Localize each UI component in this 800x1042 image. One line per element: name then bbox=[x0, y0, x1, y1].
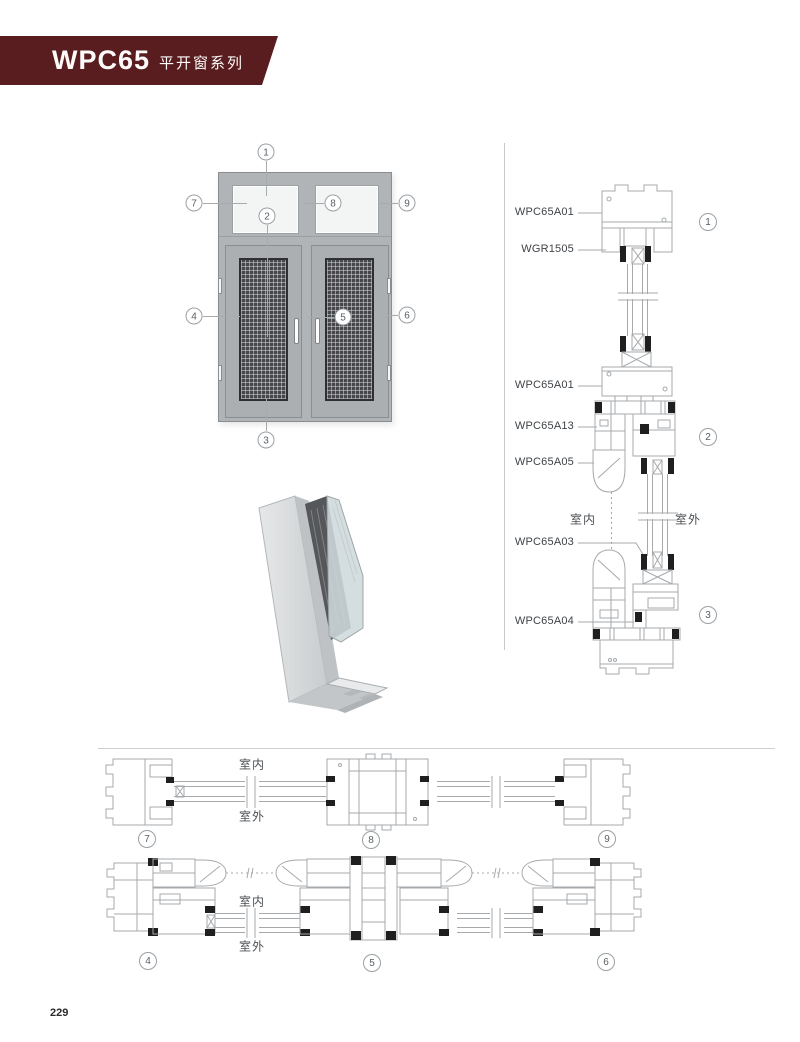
elevation-callout-3: 3 bbox=[258, 432, 275, 449]
profile-label-4: WPC65A13 bbox=[504, 420, 574, 433]
header-banner: WPC65 平开窗系列 bbox=[0, 36, 278, 85]
series-code: WPC65 bbox=[52, 47, 150, 74]
leader-line bbox=[388, 315, 398, 316]
profile-label-1: WPC65A01 bbox=[504, 206, 574, 219]
indoor-label: 室内 bbox=[239, 893, 265, 910]
hinge-right-top bbox=[387, 278, 391, 294]
section-circle-7: 7 bbox=[138, 830, 156, 848]
leader-line bbox=[266, 399, 267, 431]
section-circle-5: 5 bbox=[363, 954, 381, 972]
profile-label-6: WPC65A03 bbox=[504, 536, 574, 549]
leader-line bbox=[303, 203, 324, 204]
elevation-callout-9: 9 bbox=[399, 195, 416, 212]
transom-seam bbox=[219, 236, 391, 237]
leader-line bbox=[266, 161, 267, 196]
window-elevation bbox=[218, 172, 392, 422]
handle-left-sash bbox=[294, 318, 299, 344]
indoor-label: 室内 bbox=[570, 511, 596, 528]
outdoor-label: 室外 bbox=[239, 938, 265, 955]
profile-label-7: WPC65A04 bbox=[504, 615, 574, 628]
panel-rule bbox=[98, 748, 775, 749]
leader-line bbox=[203, 316, 240, 317]
handle-right-sash bbox=[315, 318, 320, 344]
leader-line bbox=[203, 203, 247, 204]
fixed-glass-right bbox=[315, 185, 379, 234]
casement-sash-right bbox=[311, 245, 389, 418]
profile-label-5: WPC65A05 bbox=[504, 456, 574, 469]
horizontal-section-drawing bbox=[100, 750, 660, 950]
casement-sash-left bbox=[225, 245, 302, 418]
leader-line bbox=[267, 225, 268, 337]
elevation-callout-4: 4 bbox=[186, 308, 203, 325]
indoor-label: 室内 bbox=[239, 756, 265, 773]
elevation-callout-7: 7 bbox=[186, 195, 203, 212]
outdoor-label: 室外 bbox=[239, 808, 265, 825]
section-circle-4: 4 bbox=[139, 952, 157, 970]
outdoor-label: 室外 bbox=[675, 511, 701, 528]
leader-line bbox=[307, 317, 334, 318]
elevation-callout-8: 8 bbox=[325, 195, 342, 212]
hinge-left-bottom bbox=[218, 365, 222, 381]
screen-mesh-left bbox=[239, 258, 288, 401]
screen-mesh-right bbox=[325, 258, 374, 401]
section-circle-1: 1 bbox=[699, 213, 717, 231]
catalog-page: WPC65 平开窗系列 1 2 3 4 5 6 7 8 9 bbox=[0, 0, 800, 1042]
elevation-callout-6: 6 bbox=[399, 307, 416, 324]
section-circle-2: 2 bbox=[699, 428, 717, 446]
section-circle-3: 3 bbox=[699, 606, 717, 624]
elevation-callout-2: 2 bbox=[259, 208, 276, 225]
section-circle-8: 8 bbox=[362, 831, 380, 849]
section-circle-6: 6 bbox=[597, 953, 615, 971]
profile-3d-image bbox=[243, 478, 413, 710]
elevation-callout-5: 5 bbox=[335, 309, 352, 326]
hinge-left-top bbox=[218, 278, 222, 294]
profile-label-2: WGR1505 bbox=[504, 243, 574, 256]
elevation-callout-1: 1 bbox=[258, 144, 275, 161]
section-circle-9: 9 bbox=[598, 830, 616, 848]
profile-label-3: WPC65A01 bbox=[504, 379, 574, 392]
hinge-right-bottom bbox=[387, 365, 391, 381]
leader-line bbox=[378, 203, 398, 204]
series-name: 平开窗系列 bbox=[159, 52, 244, 73]
page-number: 229 bbox=[50, 1007, 68, 1019]
